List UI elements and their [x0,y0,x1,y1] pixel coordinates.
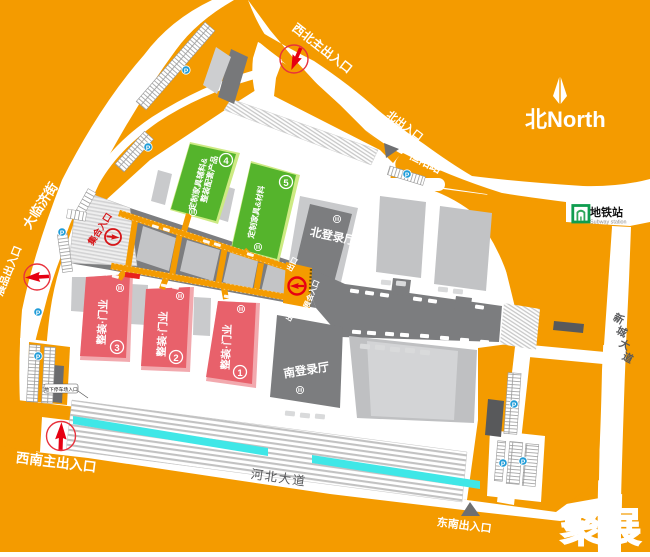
svg-text:整装·门业: 整装·门业 [95,298,110,346]
svg-text:1: 1 [237,368,243,379]
svg-text:5: 5 [283,178,289,189]
svg-text:整装·门业: 整装·门业 [219,323,234,371]
svg-text:4: 4 [223,156,229,167]
svg-text:聚展: 聚展 [560,506,641,550]
svg-text:3: 3 [114,343,119,354]
svg-text:地铁站: 地铁站 [590,205,623,219]
svg-text:北North: 北North [525,107,606,132]
svg-text:Subway station: Subway station [590,220,627,226]
svg-text:2: 2 [173,353,178,364]
svg-text:地下停车场入口: 地下停车场入口 [44,386,78,393]
svg-text:整装·门业: 整装·门业 [155,310,170,358]
